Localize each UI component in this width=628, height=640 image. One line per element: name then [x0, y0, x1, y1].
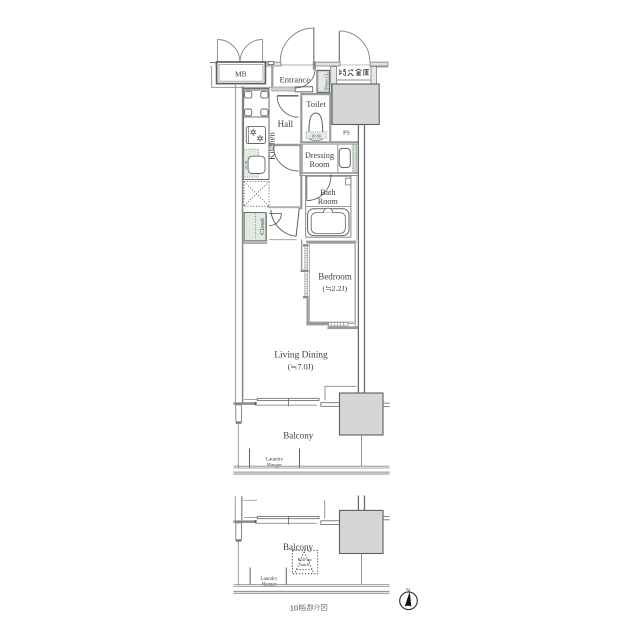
svg-text:Laundry: Laundry	[266, 458, 283, 463]
svg-text:Entrance: Entrance	[280, 74, 311, 84]
svg-text:Dressing: Dressing	[305, 151, 334, 160]
svg-text:(≒2.2J): (≒2.2J)	[323, 284, 348, 293]
svg-text:Room: Room	[309, 160, 330, 169]
svg-text:Room: Room	[318, 197, 339, 206]
svg-text:(≒7.0J): (≒7.0J)	[288, 362, 314, 371]
svg-text:N: N	[406, 587, 411, 594]
svg-text:Living Dining: Living Dining	[274, 350, 328, 360]
svg-text:W=56: W=56	[244, 160, 248, 169]
svg-text:1P-S6: 1P-S6	[311, 133, 321, 138]
svg-text:Laundry: Laundry	[261, 577, 278, 582]
svg-text:Balcony: Balcony	[283, 430, 313, 440]
svg-text:10: 10	[290, 603, 298, 612]
svg-text:Closet: Closet	[259, 218, 266, 235]
svg-text:PS: PS	[343, 129, 350, 136]
svg-text:Shoes Cl.: Shoes Cl.	[323, 73, 328, 91]
svg-text:MB: MB	[235, 70, 247, 79]
svg-text:Roll-up: Roll-up	[297, 557, 312, 562]
svg-text:Balcony: Balcony	[283, 542, 313, 552]
svg-text:Toilet: Toilet	[306, 100, 326, 109]
svg-text:Bath: Bath	[320, 188, 335, 197]
svg-text:Hall: Hall	[278, 119, 294, 129]
svg-text:hatch: hatch	[300, 562, 311, 567]
svg-text:Bedroom: Bedroom	[318, 272, 352, 282]
